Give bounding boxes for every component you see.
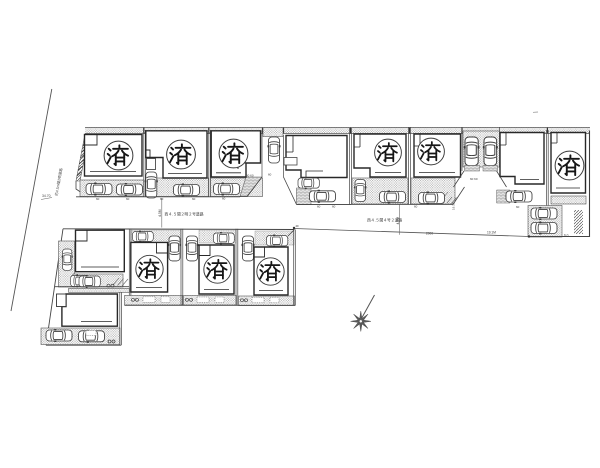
svg-text:4.5M: 4.5M [158,209,162,217]
svg-text:60: 60 [126,197,130,201]
svg-text:19.1M: 19.1M [487,230,496,234]
svg-text:60: 60 [268,173,272,177]
svg-text:60 60: 60 60 [470,177,478,181]
svg-text:60: 60 [317,205,321,209]
svg-text:西４.５間２明２号道路: 西４.５間２明２号道路 [165,212,204,217]
svg-text:19.10: 19.10 [452,202,456,210]
svg-text:4.5M: 4.5M [396,217,400,225]
svg-text:6.0: 6.0 [564,233,569,237]
svg-text:60: 60 [414,205,418,209]
svg-text:60 60: 60 60 [246,174,254,178]
svg-text:2000: 2000 [426,231,433,235]
svg-text:60: 60 [96,197,100,201]
svg-text:60: 60 [192,197,196,201]
svg-text:34.70: 34.70 [42,194,51,198]
svg-text:60: 60 [332,205,336,209]
svg-text:60: 60 [516,205,520,209]
svg-text:2F: 2F [296,224,300,228]
